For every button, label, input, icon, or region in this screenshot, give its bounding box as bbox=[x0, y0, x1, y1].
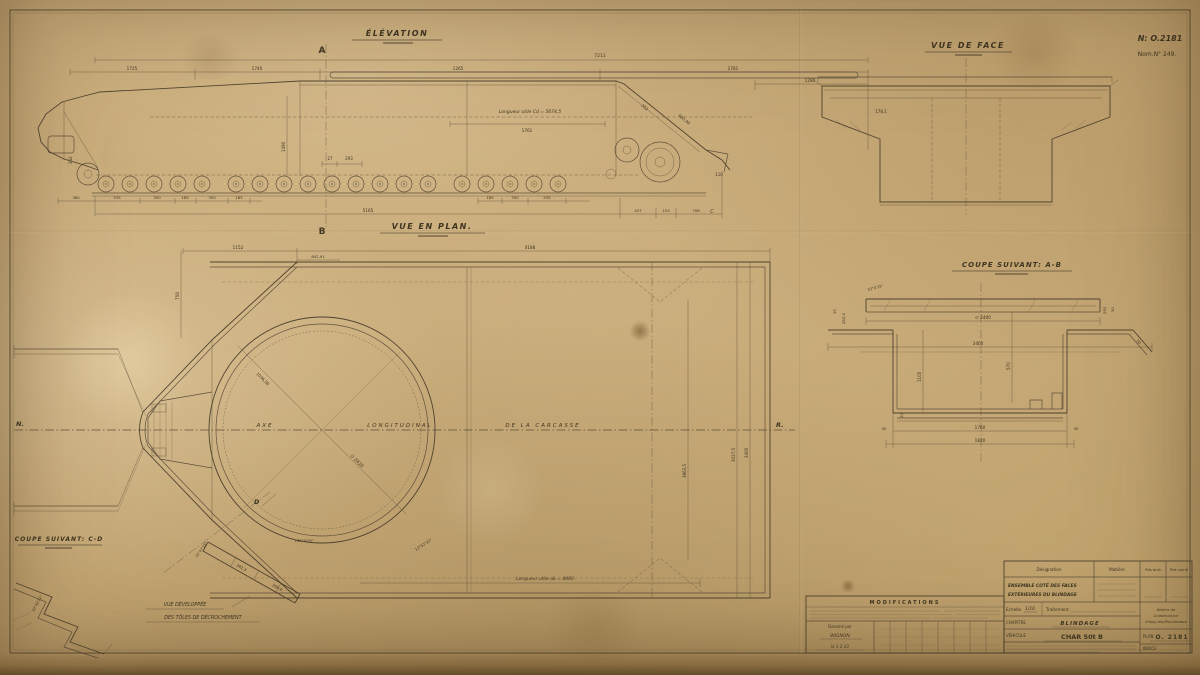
dim-570: 570 bbox=[1006, 362, 1011, 370]
axis-label-r: R. bbox=[776, 421, 784, 429]
dim-15: 15 bbox=[832, 309, 837, 314]
dim-3863: 3863,5 bbox=[682, 464, 687, 478]
dim-535r: 535 bbox=[543, 195, 551, 200]
dim-7211: 7211 bbox=[594, 53, 606, 59]
dim-153: 153 bbox=[662, 208, 670, 213]
header-pds-brut: Pds brut bbox=[1145, 567, 1161, 572]
dim-dia-2420: ∅ 2420 bbox=[349, 453, 365, 469]
front-view: VUE DE FACE 178,1 bbox=[814, 41, 1118, 215]
axis-word-carcasse: DE LA CARCASSE bbox=[505, 423, 580, 429]
echelle-value: 1/10 bbox=[1025, 606, 1035, 612]
dim-5165: 5165 bbox=[363, 208, 374, 213]
plan-label: PLAN bbox=[1143, 634, 1153, 639]
dim-185r: 185 bbox=[486, 195, 494, 200]
dim-282: 282,4 bbox=[841, 313, 846, 324]
dim-1036: 1036,56 bbox=[255, 371, 271, 387]
atelier-line-1: Atelier de bbox=[1156, 607, 1176, 612]
dim-350: 350 bbox=[153, 195, 161, 200]
dim-293: 293 bbox=[345, 156, 353, 161]
front-view-title: VUE DE FACE bbox=[931, 41, 1005, 50]
dim-3027: 3027,5 bbox=[731, 448, 736, 462]
dim-longueur-ab: Longueur utile ab = 4460 bbox=[516, 576, 574, 582]
atelier-line-3: d'Issy-les-Moulineaux bbox=[1145, 619, 1187, 624]
plan-value: O. 2181 bbox=[1155, 634, 1188, 641]
dim-1725: 1725 bbox=[127, 66, 138, 71]
dim-1280: 1280 bbox=[805, 78, 816, 83]
echelle-label: Echelle bbox=[1006, 607, 1022, 612]
dim-178: 178,1 bbox=[875, 109, 887, 114]
dim-1152: 1152 bbox=[233, 245, 244, 250]
plan-view: VUE EN PLAN. 1152 4188 842,91 750 bbox=[14, 222, 795, 598]
dim-1490: 1490 bbox=[281, 141, 286, 152]
axis-label-n: N. bbox=[16, 420, 24, 428]
angle-165: 165°4'29" bbox=[294, 538, 313, 543]
road-wheels bbox=[77, 138, 680, 192]
elevation-title: ÉLÉVATION bbox=[366, 27, 429, 38]
angle-22: 22°0'32" bbox=[867, 284, 884, 292]
dim-30-right: 30 bbox=[1074, 426, 1079, 431]
dim-350b: 350 bbox=[208, 195, 216, 200]
dim-2781: 2781 bbox=[728, 66, 739, 71]
developpee-label-1: VUE DÉVELOPPÉE bbox=[164, 600, 208, 608]
section-ab-view: COUPE SUIVANT: A-B ∅ 2400 3400 bbox=[828, 261, 1152, 462]
section-ab-title: COUPE SUIVANT: A-B bbox=[962, 261, 1062, 269]
section-marker-b: B bbox=[319, 227, 326, 237]
title-block: Désignation Matière Pds brut Pds usiné E… bbox=[1004, 561, 1192, 653]
dim-292: 292 bbox=[1102, 306, 1107, 314]
axis-word-longitudinal: LONGITUDINAL bbox=[367, 423, 432, 429]
drawn-by-label: Dessiné par bbox=[828, 624, 852, 629]
axis-word-axe: AXE bbox=[255, 423, 273, 429]
dim-dia-2400: ∅ 2400 bbox=[975, 315, 991, 320]
title-block-fine-print bbox=[1006, 646, 1136, 652]
blueprint-sheet: N: O.2181 Nom.N° 249. ÉLÉVATION A B 7211… bbox=[0, 0, 1200, 675]
angle-12: 12°52'33" bbox=[414, 537, 433, 552]
developed-view: 302,3 208,9 15°47'33" VUE DÉVELOPPÉE DES… bbox=[146, 492, 300, 622]
section-cd-view: COUPE SUIVANT: C-D 20°42'22" bbox=[14, 536, 112, 658]
plan-title: VUE EN PLAN. bbox=[392, 222, 473, 231]
dim-1740: 1740 bbox=[252, 66, 263, 71]
traitement-label: Traitement bbox=[1045, 607, 1069, 612]
dim-longueur-cd: Longueur utile Cd = 5674,5 bbox=[499, 109, 562, 115]
nomenclature-number: Nom.N° 249. bbox=[1138, 51, 1177, 58]
dim-535: 535 bbox=[113, 195, 121, 200]
designation-line-1: ENSEMBLE COTÉ DES FACES bbox=[1008, 581, 1077, 589]
indice-label: INDICE bbox=[1143, 646, 1157, 651]
header-designation: Désignation bbox=[1036, 567, 1061, 572]
header-pds-usine: Pds usiné bbox=[1170, 567, 1189, 572]
chapitre-value: BLINDAGE bbox=[1060, 621, 1099, 627]
stepped-plate-outer bbox=[16, 583, 104, 654]
dim-4188: 4188 bbox=[525, 245, 536, 250]
fine-print-lines bbox=[810, 611, 1000, 618]
dim-185: 185 bbox=[181, 195, 189, 200]
dim-1760: 1760 bbox=[975, 425, 986, 430]
dim-1761: 1761 bbox=[522, 128, 533, 133]
drawn-by-name: WIGNON bbox=[830, 633, 850, 639]
side-armor-rail bbox=[330, 72, 858, 78]
sheet-number-block: N: O.2181 Nom.N° 249. bbox=[1138, 34, 1183, 58]
dim-30-top: 30 bbox=[1110, 307, 1115, 312]
dim-750: 750 bbox=[175, 292, 180, 300]
dim-1105: 1105 bbox=[917, 371, 922, 382]
nose-hatch bbox=[48, 136, 74, 153]
dim-3400-ab: 3400 bbox=[973, 341, 984, 346]
elevation-view: ÉLÉVATION A B 7211 1725 1740 1265 2781 1… bbox=[38, 27, 868, 237]
dim-380: 380 bbox=[72, 195, 80, 200]
hull-tub-section bbox=[828, 330, 1152, 421]
drawn-date: le 1-2-33 bbox=[831, 644, 849, 649]
chapitre-label: CHAPITRE bbox=[1006, 620, 1026, 625]
header-matiere: Matière bbox=[1109, 567, 1125, 572]
section-cd-title: COUPE SUIVANT: C-D bbox=[15, 536, 103, 543]
vehicule-value: CHAR 50t B bbox=[1061, 633, 1103, 641]
dim-3400-plan: 3400 bbox=[744, 447, 749, 458]
sheet-border bbox=[10, 10, 1190, 653]
dim-30-left: 30 bbox=[882, 426, 887, 431]
section-marker-a: A bbox=[319, 46, 326, 56]
dim-185b: 185 bbox=[235, 195, 243, 200]
dim-1265: 1265 bbox=[453, 66, 464, 71]
modifications-block: MODIFICATIONS Dessiné par WIGNON le 1-2-… bbox=[806, 596, 1004, 653]
developpee-label-2: DES TÔLES DE DÉCROCHEMENT bbox=[164, 613, 242, 621]
vehicule-label: VÉHICULE bbox=[1006, 633, 1026, 638]
dim-1820: 1820 bbox=[975, 438, 986, 443]
dim-342: 342 bbox=[68, 156, 73, 164]
designation-line-2: EXTÉRIEURES DU BLINDAGE bbox=[1008, 590, 1077, 598]
roof-plate bbox=[866, 299, 1100, 312]
atelier-line-2: Construction bbox=[1154, 613, 1179, 618]
dim-27: 27 bbox=[327, 156, 333, 161]
dim-842: 842,91 bbox=[311, 254, 325, 259]
hull-top-outline bbox=[38, 81, 730, 170]
dim-708: 708 bbox=[692, 208, 700, 213]
dim-683: 683,46 bbox=[677, 113, 691, 126]
modifications-title: MODIFICATIONS bbox=[870, 600, 941, 606]
dim-437: 437 bbox=[634, 208, 642, 213]
section-marker-c: C bbox=[710, 209, 714, 215]
dim-350r: 350 bbox=[511, 195, 519, 200]
plan-number: N: O.2181 bbox=[1138, 34, 1183, 43]
dim-20: 20 bbox=[899, 413, 904, 418]
